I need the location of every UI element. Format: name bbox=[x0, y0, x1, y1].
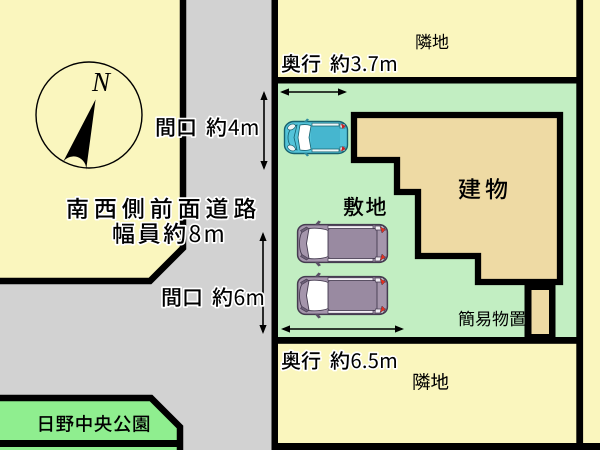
svg-text:N: N bbox=[91, 67, 112, 97]
